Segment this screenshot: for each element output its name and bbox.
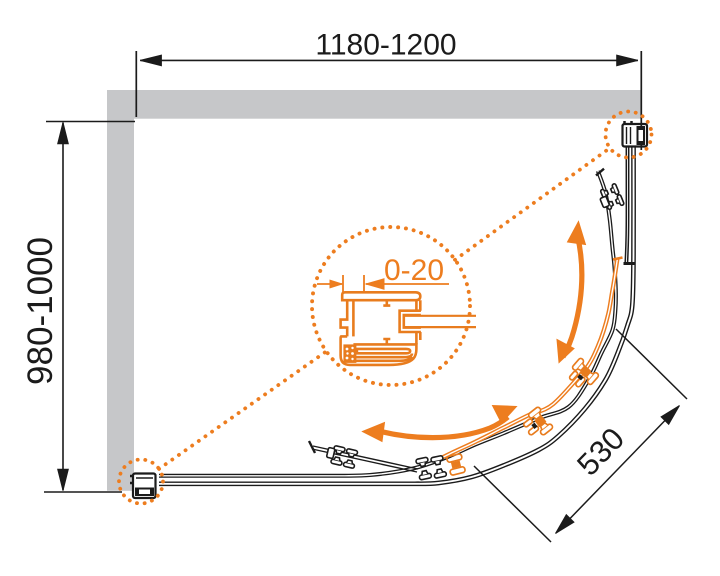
- svg-text:980-1000: 980-1000: [21, 237, 60, 385]
- svg-text:1180-1200: 1180-1200: [315, 28, 456, 61]
- svg-text:0-20: 0-20: [384, 254, 444, 287]
- svg-text:530: 530: [570, 421, 631, 483]
